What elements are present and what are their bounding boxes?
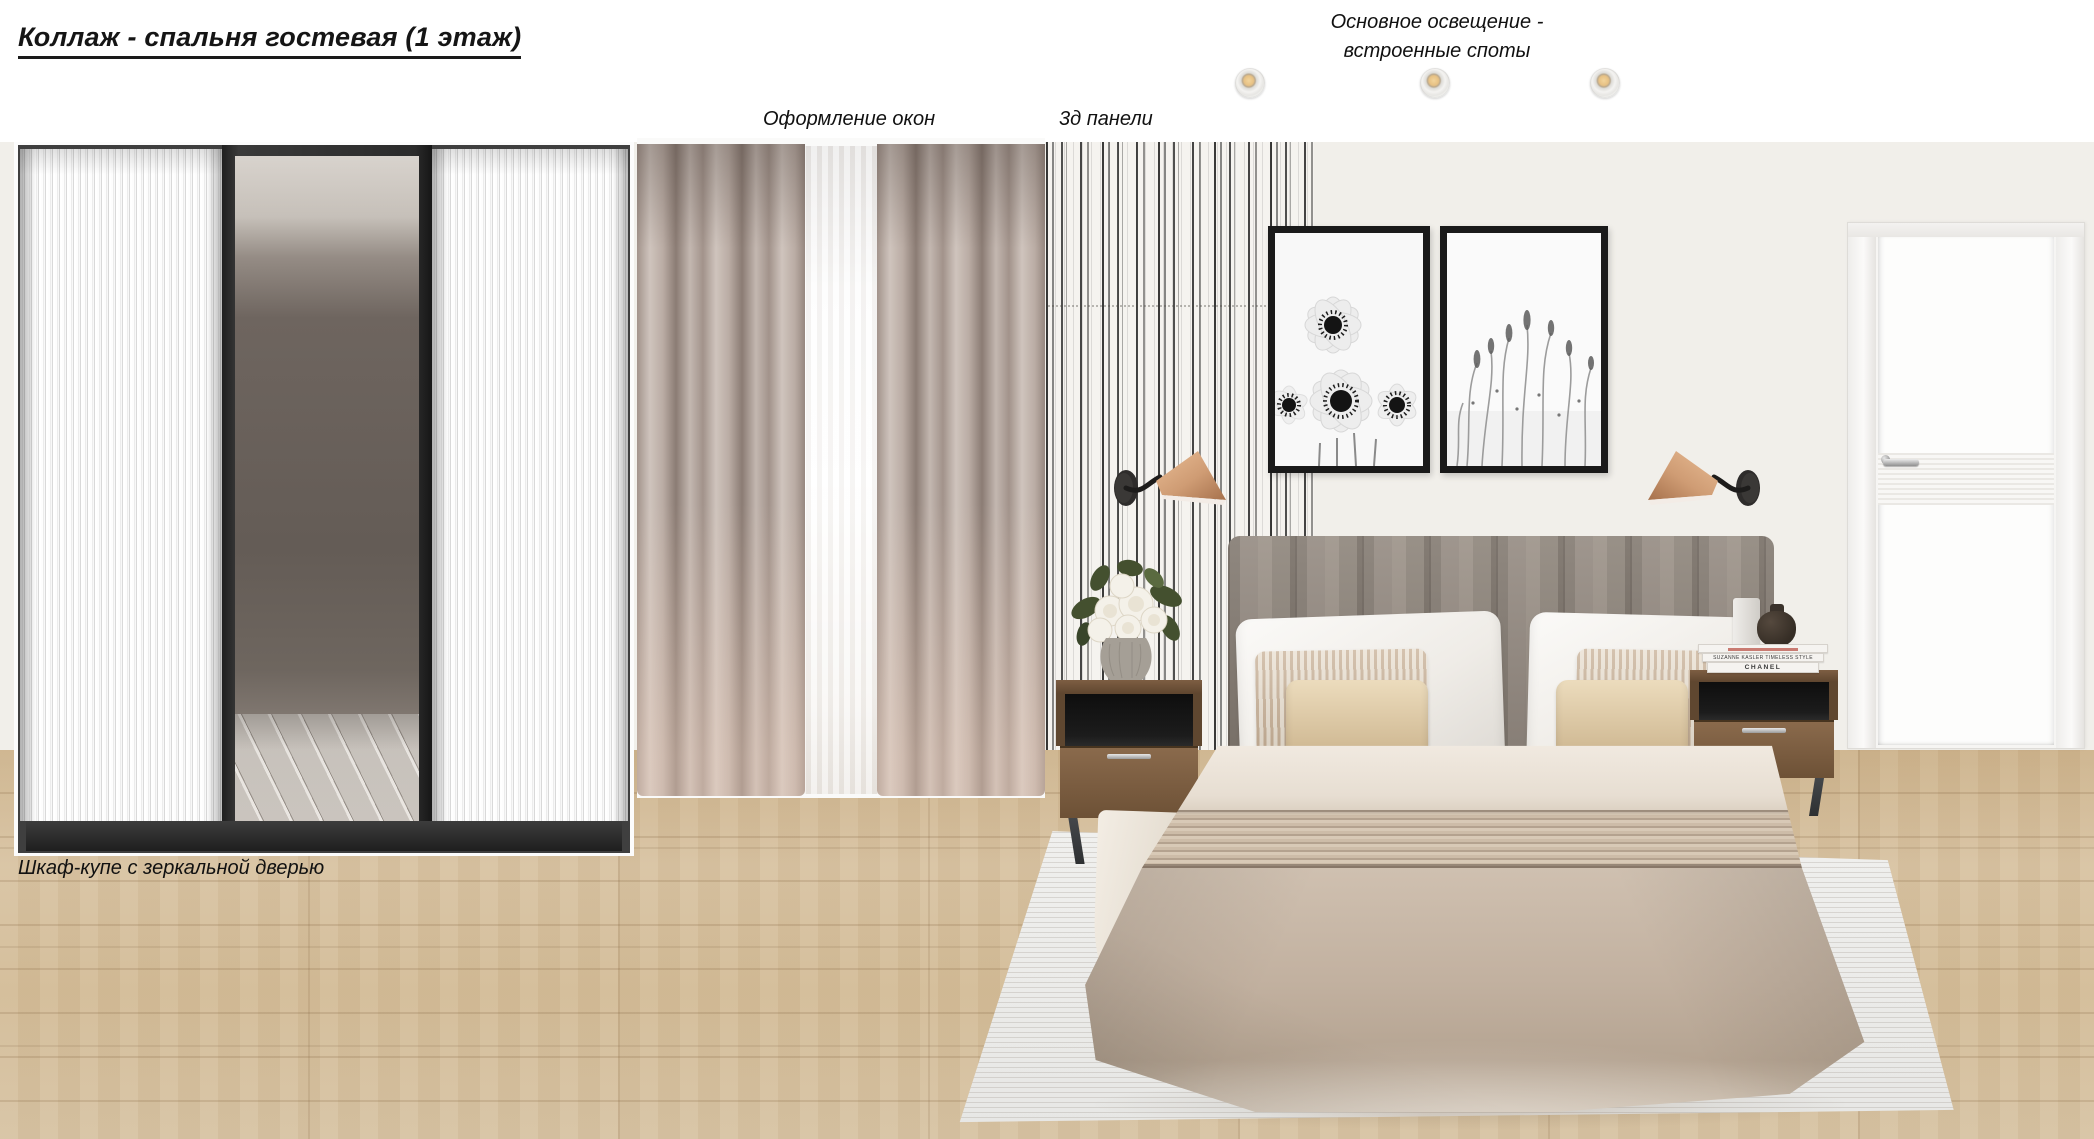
wardrobe-plinth: [26, 821, 622, 851]
nightstand-shelf-opening: [1065, 694, 1193, 746]
collage-canvas: SUZANNE KASLER TIMELESS STYLE CHANEL Кол…: [0, 0, 2094, 1139]
recessed-spot-icon: [1235, 68, 1265, 98]
sconce-right-icon: [1646, 450, 1760, 520]
window-photo-block: [637, 138, 1045, 798]
wardrobe-left-door: [20, 149, 222, 821]
recessed-spot-icon: [1590, 68, 1620, 98]
mirror-glass: [235, 156, 419, 832]
curtain-right-panel: [877, 144, 1045, 796]
door-frame-left: [1848, 223, 1876, 748]
nightstand-shelf: [1056, 694, 1202, 746]
nightstand-leg: [1809, 778, 1824, 816]
book-red-text: [1728, 648, 1798, 651]
label-main-lighting: Основное освещение - встроенные споты: [1317, 8, 1557, 66]
bed-striped-blanket: [1060, 810, 1870, 868]
book-middle-title: SUZANNE KASLER TIMELESS STYLE: [1703, 654, 1823, 662]
label-3d-panels: 3д панели: [1059, 108, 1153, 131]
flower-bouquet: [1070, 556, 1182, 686]
curtain-left-panel: [637, 144, 805, 796]
page-title: Коллаж - спальня гостевая (1 этаж): [18, 22, 521, 59]
nightstand-drawer: [1060, 746, 1198, 818]
wardrobe-photo-block: [14, 142, 634, 856]
book-top: [1698, 644, 1828, 653]
wardrobe: [18, 145, 630, 853]
vase: [1757, 611, 1796, 647]
door-handle: [1883, 459, 1919, 466]
book-bottom-title: CHANEL: [1708, 663, 1818, 673]
drawer-handle: [1107, 754, 1151, 759]
mirror-floor-reflection: [235, 714, 419, 832]
artwork-flowers: [1275, 233, 1423, 466]
candle: [1733, 598, 1760, 646]
book-middle: SUZANNE KASLER TIMELESS STYLE: [1702, 653, 1824, 662]
label-wardrobe: Шкаф-купе с зеркальной дверью: [18, 857, 324, 880]
recessed-spot-icon: [1420, 68, 1450, 98]
sconce-left-icon: [1114, 450, 1228, 520]
panel-seam-line: [1048, 305, 1270, 307]
book-bottom: CHANEL: [1707, 662, 1819, 673]
artwork-grasses: [1447, 233, 1601, 466]
label-main-lighting-line2: встроенные споты: [1344, 40, 1531, 62]
door-frame-top: [1848, 223, 2084, 237]
nightstand-shelf-opening: [1699, 682, 1829, 720]
artwork-grasses-frame: [1440, 226, 1608, 473]
wardrobe-right-door: [432, 149, 628, 821]
wardrobe-mirror-door: [222, 145, 432, 845]
nightstand-shelf: [1690, 682, 1838, 720]
door-leaf: [1878, 237, 2054, 745]
artwork-flowers-frame: [1268, 226, 1430, 473]
label-main-lighting-line1: Основное освещение -: [1331, 11, 1544, 33]
door-frame-right: [2056, 223, 2084, 748]
label-window-decor: Оформление окон: [763, 108, 935, 131]
bed-duvet: [1060, 868, 1870, 1115]
entry-door: [1847, 222, 2085, 749]
drawer-handle: [1742, 728, 1786, 733]
nightstand-leg: [1068, 818, 1084, 864]
